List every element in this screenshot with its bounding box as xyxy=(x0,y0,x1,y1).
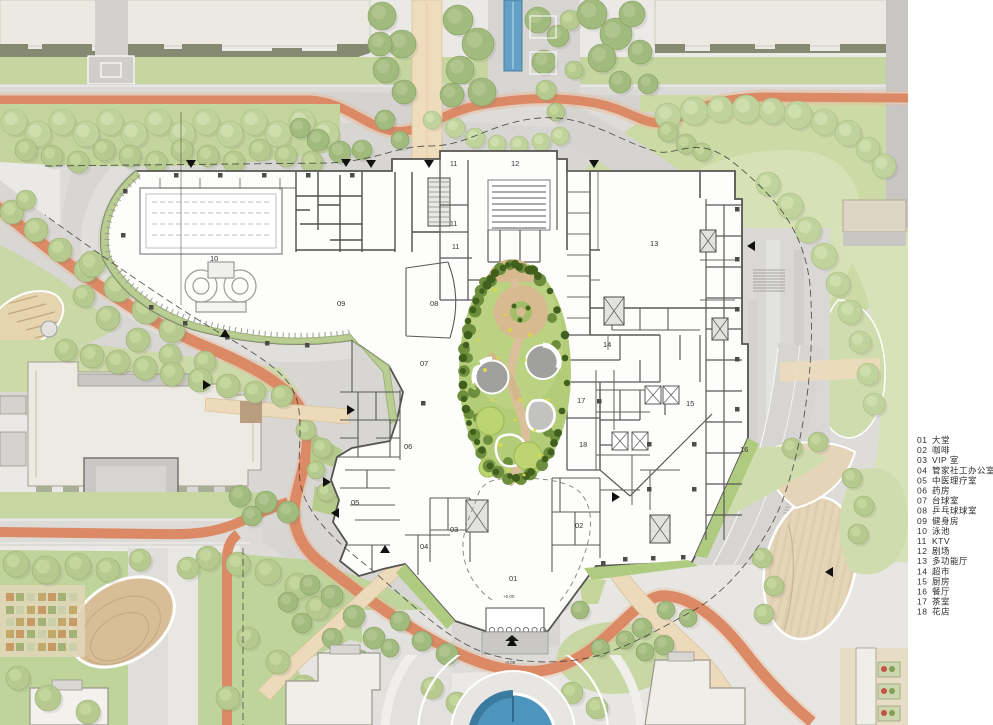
svg-text:大堂: 大堂 xyxy=(932,435,950,445)
svg-text:管家社工办公室: 管家社工办公室 xyxy=(932,465,993,475)
svg-text:05: 05 xyxy=(917,475,927,485)
svg-text:厨房: 厨房 xyxy=(932,576,950,586)
svg-text:03: 03 xyxy=(917,455,927,465)
svg-text:14: 14 xyxy=(603,340,611,349)
svg-text:15: 15 xyxy=(686,399,694,408)
svg-text:+0.00: +0.00 xyxy=(503,594,515,599)
svg-text:咖啡: 咖啡 xyxy=(932,445,950,455)
svg-text:04: 04 xyxy=(420,542,428,551)
svg-text:07: 07 xyxy=(917,496,927,506)
svg-text:茶室: 茶室 xyxy=(932,597,950,607)
svg-text:03: 03 xyxy=(450,525,458,534)
svg-text:15: 15 xyxy=(917,576,927,586)
svg-text:泳池: 泳池 xyxy=(932,526,950,536)
svg-text:05: 05 xyxy=(351,498,359,507)
svg-text:02: 02 xyxy=(575,521,583,530)
svg-text:花店: 花店 xyxy=(932,607,950,617)
svg-text:18: 18 xyxy=(579,440,587,449)
svg-text:11: 11 xyxy=(450,221,457,228)
svg-text:VIP 室: VIP 室 xyxy=(932,455,959,465)
svg-text:01: 01 xyxy=(917,435,927,445)
svg-text:11: 11 xyxy=(450,161,457,168)
svg-text:餐厅: 餐厅 xyxy=(932,587,950,597)
svg-text:11: 11 xyxy=(452,244,459,251)
svg-text:08: 08 xyxy=(917,506,927,516)
svg-text:02: 02 xyxy=(917,445,927,455)
svg-text:16: 16 xyxy=(917,587,927,597)
svg-text:乒乓球球室: 乒乓球球室 xyxy=(932,506,977,516)
svg-text:健身房: 健身房 xyxy=(932,516,959,526)
svg-text:04: 04 xyxy=(917,465,927,475)
svg-text:17: 17 xyxy=(577,396,585,405)
svg-text:KTV: KTV xyxy=(932,536,950,546)
svg-text:16: 16 xyxy=(740,445,748,454)
svg-text:08: 08 xyxy=(430,299,438,308)
svg-text:台球室: 台球室 xyxy=(932,496,959,506)
svg-text:12: 12 xyxy=(511,159,519,168)
svg-text:药房: 药房 xyxy=(932,486,950,496)
svg-text:01: 01 xyxy=(509,574,517,583)
svg-text:07: 07 xyxy=(420,359,428,368)
svg-text:06: 06 xyxy=(404,442,412,451)
svg-text:中医理疗室: 中医理疗室 xyxy=(932,475,977,485)
svg-text:13: 13 xyxy=(650,239,658,248)
svg-text:超市: 超市 xyxy=(932,566,950,576)
svg-text:13: 13 xyxy=(917,556,927,566)
svg-text:06: 06 xyxy=(917,486,927,496)
svg-text:18: 18 xyxy=(917,607,927,617)
svg-text:12: 12 xyxy=(917,546,927,556)
svg-text:10: 10 xyxy=(917,526,927,536)
svg-text:剧场: 剧场 xyxy=(932,546,950,556)
svg-text:14: 14 xyxy=(917,566,927,576)
svg-text:09: 09 xyxy=(917,516,927,526)
svg-text:-0.00: -0.00 xyxy=(505,660,516,665)
svg-text:09: 09 xyxy=(337,299,345,308)
svg-text:11: 11 xyxy=(917,536,927,546)
svg-text:17: 17 xyxy=(917,597,927,607)
svg-text:多功能厅: 多功能厅 xyxy=(932,556,968,566)
